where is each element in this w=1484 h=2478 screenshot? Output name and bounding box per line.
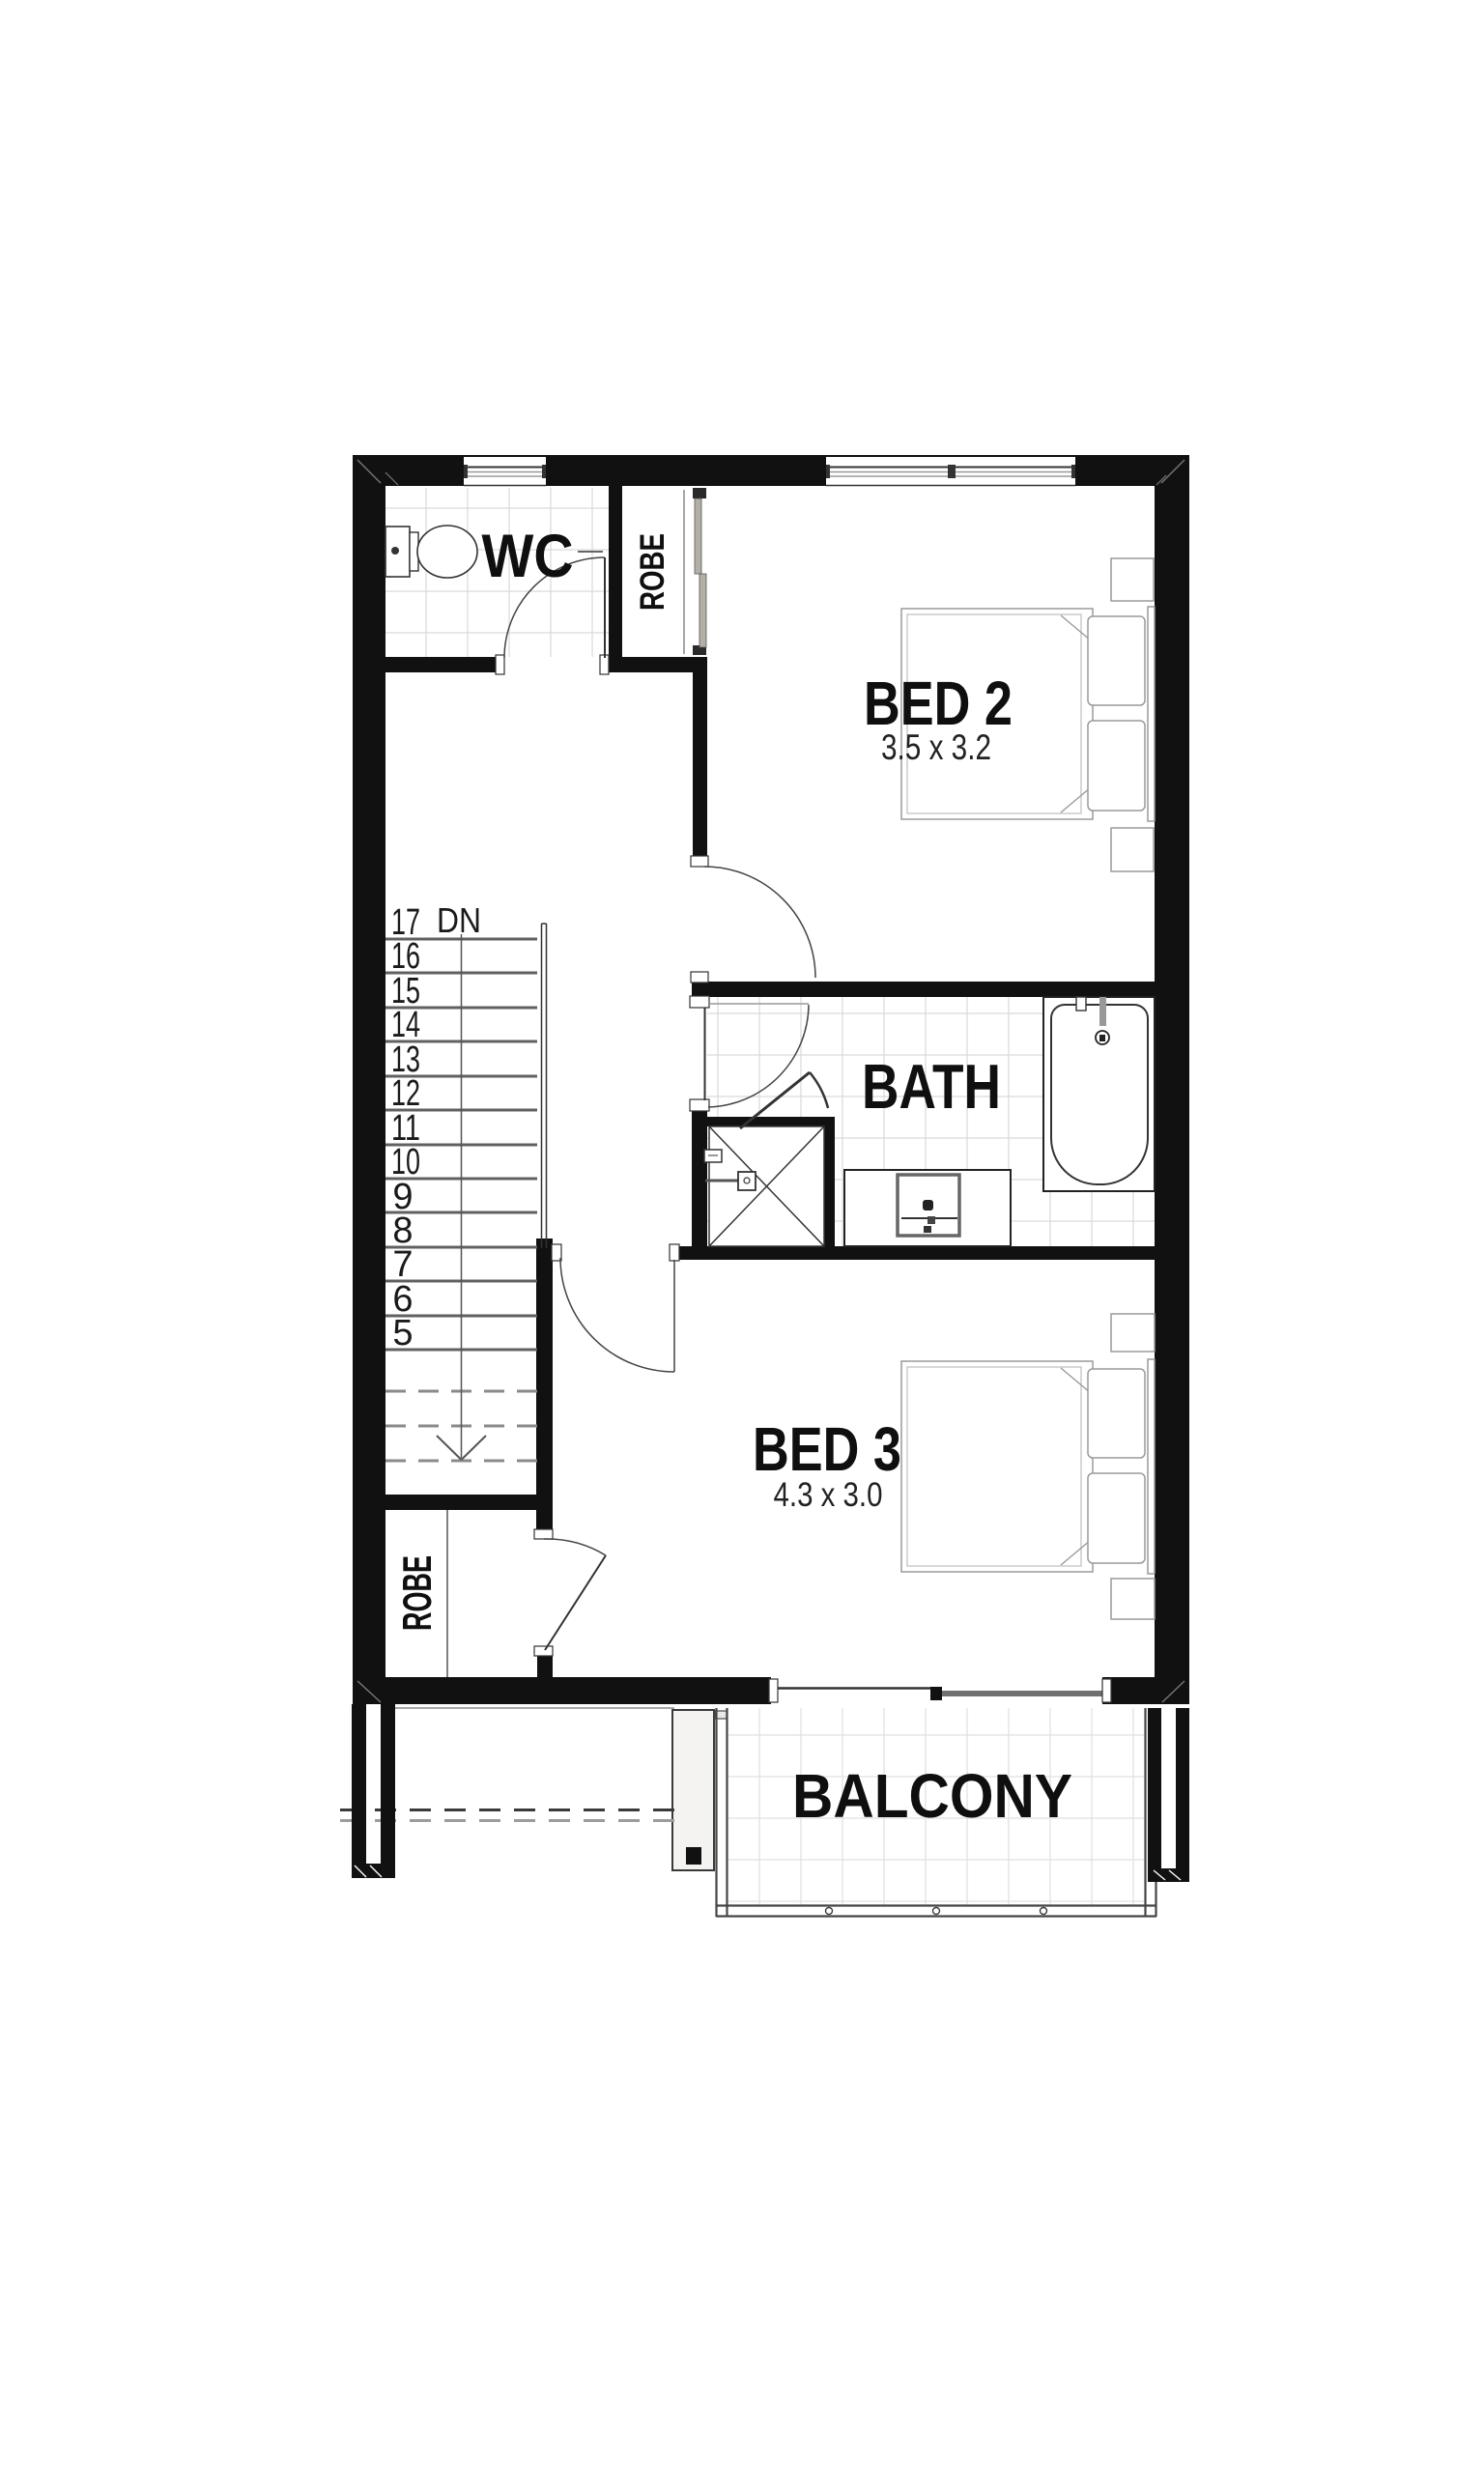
svg-text:BED 3: BED 3 xyxy=(753,1414,901,1484)
svg-text:ROBE: ROBE xyxy=(394,1555,440,1631)
svg-text:BATH: BATH xyxy=(862,1051,1001,1122)
svg-text:ROBE: ROBE xyxy=(634,533,671,611)
svg-text:WC: WC xyxy=(482,523,574,590)
svg-text:4.3 x 3.0: 4.3 x 3.0 xyxy=(774,1476,883,1514)
svg-text:DN: DN xyxy=(437,900,481,940)
svg-text:3.5 x 3.2: 3.5 x 3.2 xyxy=(881,727,991,767)
svg-text:BALCONY: BALCONY xyxy=(792,1761,1072,1831)
svg-text:5: 5 xyxy=(392,1313,413,1353)
